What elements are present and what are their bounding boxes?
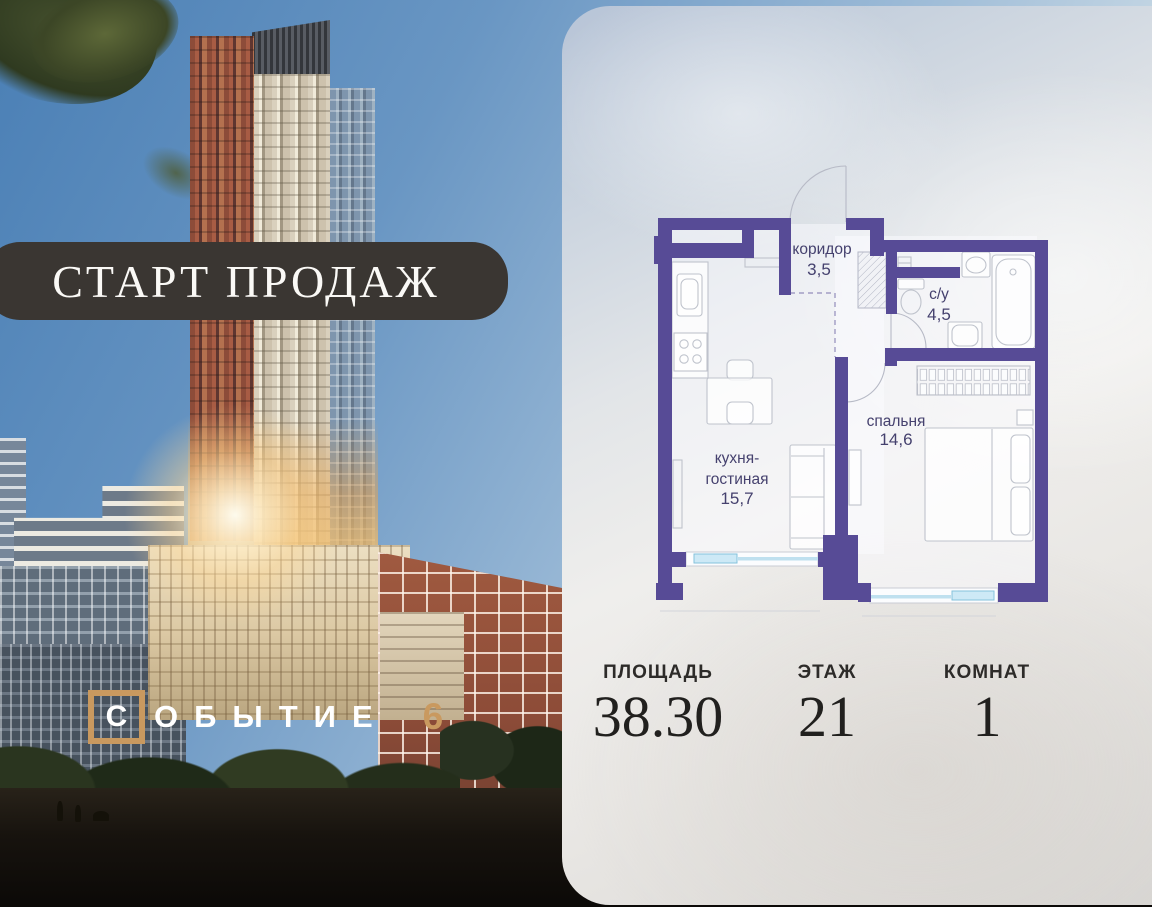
bathroom-area: 4,5 [927, 305, 951, 324]
kitchen-living-label-line2: гостиная [705, 471, 768, 488]
logo-number: 6 [423, 696, 444, 738]
sales-banner: СТАРТ ПРОДАЖ [0, 242, 508, 320]
people-silhouettes [45, 785, 195, 845]
sun-glare [120, 400, 350, 630]
corridor-label: коридор [792, 241, 851, 258]
bedside-table [1017, 410, 1033, 425]
wardrobe [917, 366, 1030, 395]
floorplan: коридор 3,5 с/у 4,5 кухня- гостиная 15,7… [640, 150, 1060, 620]
stat-area-label: ПЛОЩАДЬ [593, 662, 724, 684]
corridor-area: 3,5 [807, 260, 831, 279]
cyclist-silhouette [93, 811, 109, 821]
dining-chair [727, 360, 753, 380]
person-silhouette [75, 805, 81, 822]
pillow [1011, 487, 1030, 535]
kitchen-living-area: 15,7 [720, 489, 753, 508]
stat-area-value: 38.30 [593, 688, 724, 746]
stat-rooms-label: КОМНАТ [944, 662, 1030, 684]
logo-letter-frame: С [88, 690, 145, 744]
stat-area: ПЛОЩАДЬ 38.30 [593, 662, 724, 746]
pillow [1011, 435, 1030, 483]
dining-chair [727, 402, 753, 424]
person-silhouette [57, 801, 63, 821]
logo-word: ОБЫТИЕ [154, 699, 389, 735]
stat-rooms-value: 1 [944, 688, 1030, 746]
kitchen-living-label-line1: кухня- [715, 450, 760, 467]
stat-floor: ЭТАЖ 21 [798, 662, 857, 746]
facade-lines [660, 611, 996, 616]
vent-shaft [858, 252, 886, 308]
info-panel: коридор 3,5 с/у 4,5 кухня- гостиная 15,7… [562, 6, 1152, 905]
project-logo: С ОБЫТИЕ 6 [88, 690, 443, 744]
bedroom-area: 14,6 [879, 430, 912, 449]
toilet [898, 279, 924, 289]
bedroom-label: спальня [867, 413, 926, 430]
stat-floor-label: ЭТАЖ [798, 662, 857, 684]
washing-machine [948, 322, 982, 349]
bedroom-desk [849, 450, 861, 505]
bathroom-label: с/у [929, 286, 949, 303]
window-glass [694, 554, 737, 563]
kitchen-hob [674, 333, 707, 371]
logo-first-letter: С [106, 700, 128, 734]
promo-card: СТАРТ ПРОДАЖ С ОБЫТИЕ 6 [0, 0, 1152, 907]
stat-floor-value: 21 [798, 688, 857, 746]
window-glass [952, 591, 994, 600]
stat-rooms: КОМНАТ 1 [944, 662, 1030, 746]
sales-banner-text: СТАРТ ПРОДАЖ [52, 255, 440, 308]
